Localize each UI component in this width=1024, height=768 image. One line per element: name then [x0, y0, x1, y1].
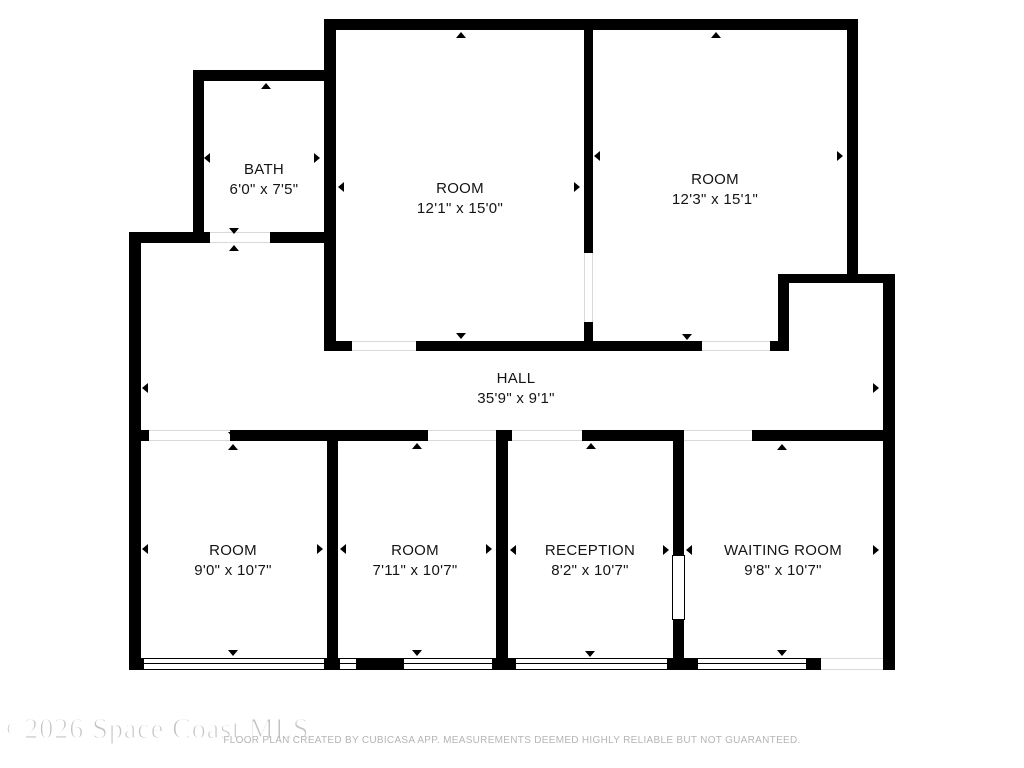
- door-opening-room-top-left: [352, 341, 416, 351]
- wall-bath-north: [193, 70, 336, 81]
- room-label-top-right: ROOM 12'3" x 15'1": [605, 170, 825, 210]
- measure-arrow: [456, 32, 466, 38]
- wall-top-exterior: [324, 19, 858, 30]
- room-label-waiting-room: WAITING ROOM 9'8" x 10'7": [673, 541, 893, 581]
- door-opening-bath: [210, 232, 270, 243]
- measure-arrow: [142, 383, 148, 393]
- room-name: WAITING ROOM: [673, 541, 893, 561]
- wall-bath-west: [193, 70, 204, 243]
- measure-arrow: [873, 383, 879, 393]
- door-opening-waiting-room: [684, 430, 752, 441]
- measure-arrow: [585, 651, 595, 657]
- measure-arrow: [229, 245, 239, 251]
- room-dimensions: 8'2" x 10'7": [480, 561, 700, 581]
- window-waiting-room: [697, 658, 807, 670]
- room-dimensions: 12'1" x 15'0": [350, 199, 570, 219]
- room-name: HALL: [406, 369, 626, 389]
- measure-arrow: [228, 444, 238, 450]
- measure-arrow: [229, 228, 239, 234]
- measure-arrow: [228, 432, 238, 438]
- measure-arrow: [594, 151, 600, 161]
- room-dimensions: 9'8" x 10'7": [673, 561, 893, 581]
- wall-step-west: [778, 274, 789, 351]
- door-opening-room-bottom-mid: [428, 430, 496, 441]
- room-name: ROOM: [350, 179, 570, 199]
- measure-arrow: [837, 151, 843, 161]
- measure-arrow: [228, 650, 238, 656]
- wall-room-top-right-east: [847, 19, 858, 283]
- room-dimensions: 12'3" x 15'1": [605, 190, 825, 210]
- room-name: ROOM: [605, 170, 825, 190]
- room-dimensions: 35'9" x 9'1": [406, 389, 626, 409]
- measure-arrow: [777, 650, 787, 656]
- window-room-bottom-mid-1: [339, 658, 357, 670]
- wall-west-exterior: [129, 232, 141, 670]
- measure-arrow: [682, 334, 692, 340]
- measure-arrow: [456, 333, 466, 339]
- door-opening-reception: [512, 430, 582, 441]
- measure-arrow: [261, 83, 271, 89]
- room-label-hall: HALL 35'9" x 9'1": [406, 369, 626, 409]
- measure-arrow: [412, 443, 422, 449]
- measure-arrow: [412, 650, 422, 656]
- room-dimensions: 6'0" x 7'5": [154, 180, 374, 200]
- room-label-reception: RECEPTION 8'2" x 10'7": [480, 541, 700, 581]
- room-label-bath: BATH 6'0" x 7'5": [154, 160, 374, 200]
- measure-arrow: [777, 444, 787, 450]
- room-label-top-left: ROOM 12'1" x 15'0": [350, 179, 570, 219]
- door-opening-room-top-right: [702, 341, 770, 351]
- wall-east-exterior: [883, 274, 895, 670]
- floor-plan-canvas: BATH 6'0" x 7'5" ROOM 12'1" x 15'0" ROOM…: [0, 0, 1024, 768]
- wall-step-north: [778, 274, 895, 283]
- room-name: BATH: [154, 160, 374, 180]
- window-room-bottom-mid-2: [403, 658, 493, 670]
- door-opening-upper-divider: [584, 253, 593, 322]
- measure-arrow: [574, 182, 580, 192]
- disclaimer-text: FLOOR PLAN CREATED BY CUBICASA APP. MEAS…: [0, 735, 1024, 746]
- door-opening-room-bottom-left: [149, 430, 230, 441]
- entry-opening: [821, 658, 883, 670]
- window-reception: [515, 658, 668, 670]
- measure-arrow: [586, 443, 596, 449]
- room-name: RECEPTION: [480, 541, 700, 561]
- window-room-bottom-left: [143, 658, 325, 670]
- measure-arrow: [711, 32, 721, 38]
